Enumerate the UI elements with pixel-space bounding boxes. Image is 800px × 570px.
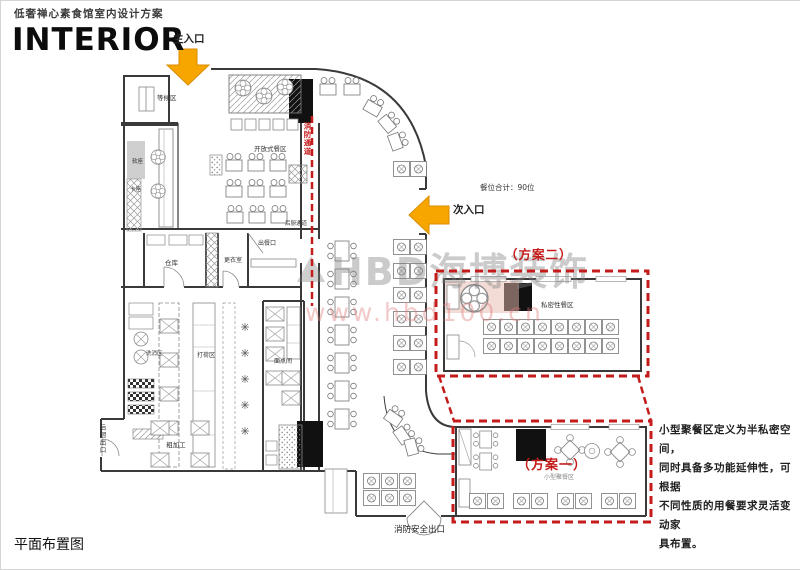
page-title: INTERIOR xyxy=(12,23,185,57)
design-note-line: 同时具备多功能延伸性，可根据 xyxy=(659,459,797,497)
design-note: 小型聚餐区定义为半私密空间， 同时具备多功能延伸性，可根据 不同性质的用餐要求灵… xyxy=(659,421,797,554)
design-note-line: 不同性质的用餐要求灵活变动家 xyxy=(659,497,797,535)
plan-connector-lines xyxy=(439,376,651,421)
secondary-entrance-label: 次入口 xyxy=(453,205,485,217)
plan1-label: （方案一） xyxy=(517,459,587,473)
fire-exit-label: 消防安全出口 xyxy=(394,526,445,535)
seat-total-label: 餐位合计：90位 xyxy=(480,184,535,192)
plan2-label: （方案二） xyxy=(505,248,573,262)
plan-sheet: 等候区 开放式餐区 仓库 更衣室 出餐口 软座 卡座 洗消区 打荷区 面点间 粗… xyxy=(0,0,800,570)
fire-passage-label: 消防通道 xyxy=(302,122,313,156)
drawing-title: 平面布置图 xyxy=(14,538,84,553)
private-dining-label: 私密性餐区 xyxy=(541,302,574,309)
design-note-line: 具布置。 xyxy=(659,535,797,554)
main-entrance-label: 主入口 xyxy=(173,34,205,46)
design-note-line: 小型聚餐区定义为半私密空间， xyxy=(659,421,797,459)
secondary-entrance-arrow-icon xyxy=(409,196,449,234)
document-subtitle: 低奢禅心素食馆室内设计方案 xyxy=(14,9,164,21)
plan2-dashed-box xyxy=(436,271,648,376)
plan1-area-label: 小型聚餐区 xyxy=(544,475,574,482)
kitchen-exit-label: 后厨出口 xyxy=(97,424,107,454)
